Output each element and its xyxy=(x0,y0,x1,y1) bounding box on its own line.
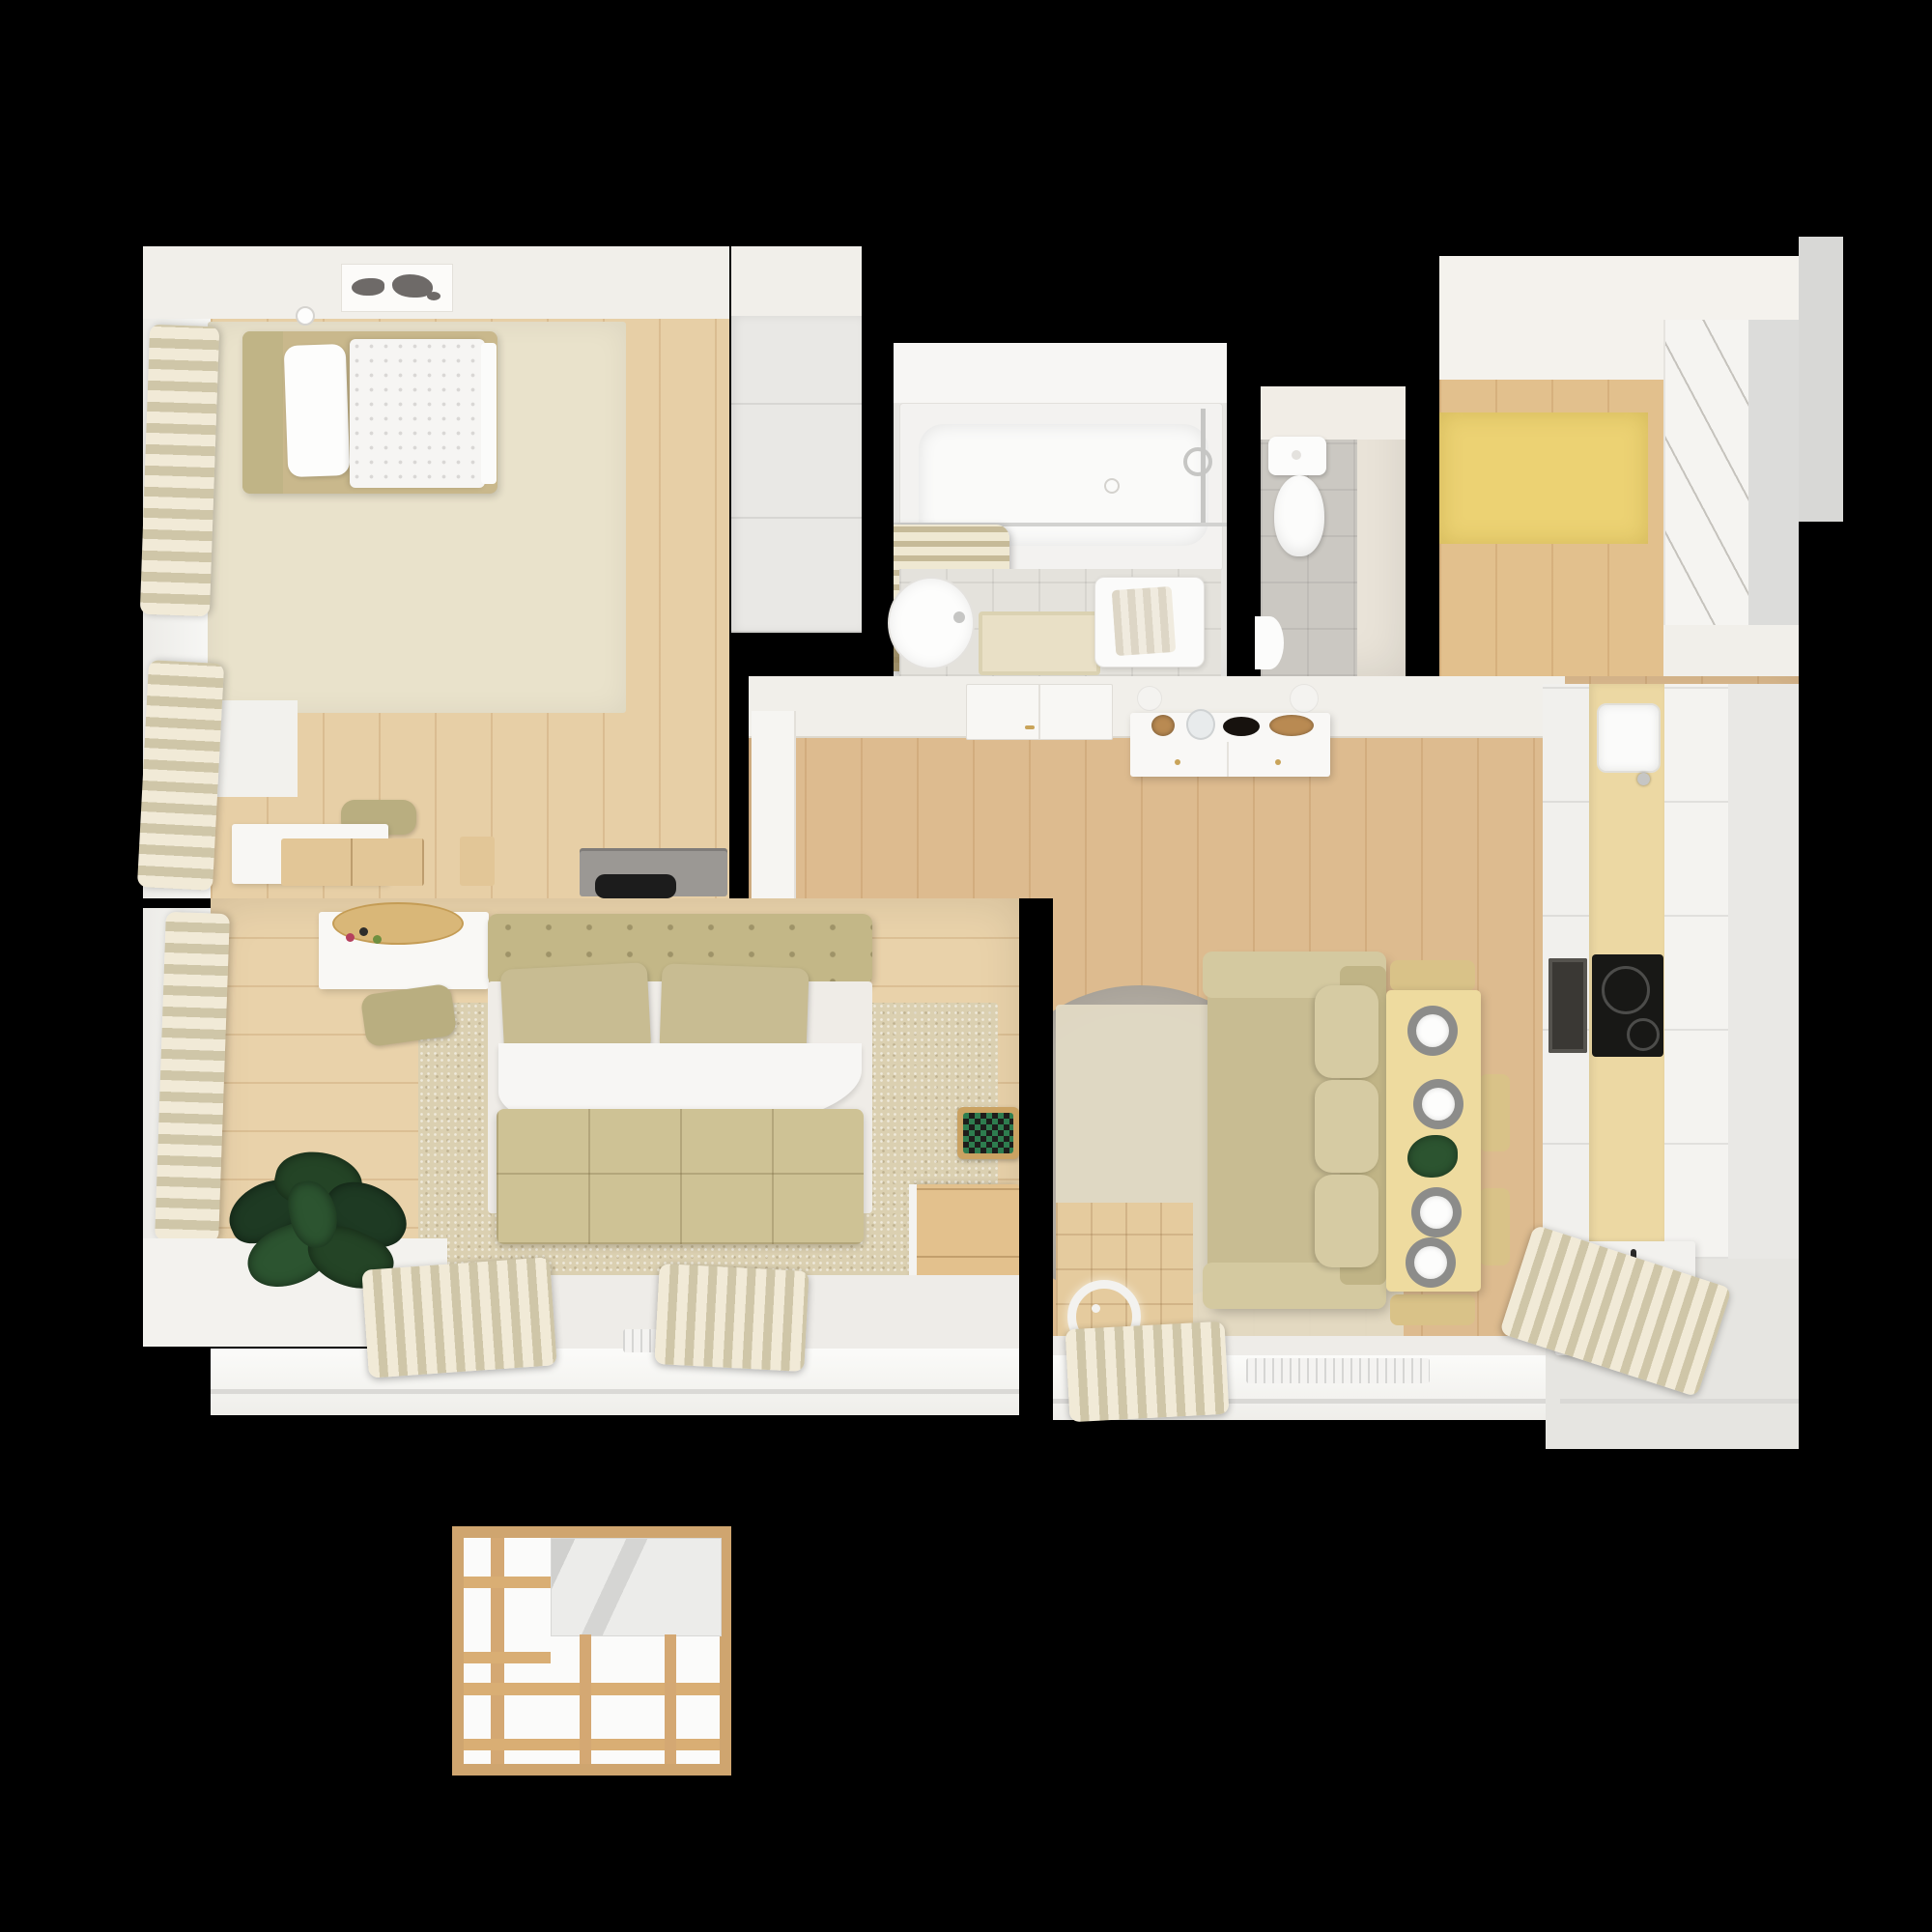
wardrobe xyxy=(731,316,862,633)
bath-mat xyxy=(979,611,1100,675)
door-handle xyxy=(1025,725,1035,729)
desk-drawers xyxy=(281,838,424,886)
curtain-rod xyxy=(1560,1399,1799,1404)
wall-plate-decor xyxy=(1290,684,1319,713)
cooktop xyxy=(1592,954,1663,1057)
console-knob xyxy=(1275,759,1281,765)
room-wc xyxy=(1261,386,1406,676)
floor-joist xyxy=(464,1683,720,1695)
side-cabinet xyxy=(460,837,495,886)
kitchen-tall-cabinets xyxy=(1664,684,1728,1259)
mattress-edge xyxy=(481,343,497,484)
dining-chair xyxy=(1390,960,1475,991)
table-plant xyxy=(1407,1135,1458,1178)
corner-sink xyxy=(1255,616,1284,669)
console-knob xyxy=(1175,759,1180,765)
door-seam xyxy=(1038,685,1040,739)
towel xyxy=(1112,586,1177,656)
pouf-top xyxy=(963,1113,1013,1153)
room-bedroom-1 xyxy=(143,246,729,898)
curtain xyxy=(361,1257,556,1378)
checker-pouf xyxy=(957,1107,1019,1159)
room-bedroom-2 xyxy=(143,898,1019,1415)
burner xyxy=(1627,1018,1660,1051)
bedroom-1-wardrobe-column xyxy=(731,246,862,633)
oven xyxy=(1548,958,1587,1053)
sink-faucet xyxy=(953,611,965,623)
floor-joist xyxy=(464,1739,720,1750)
bath-sink xyxy=(888,577,975,669)
shower-head xyxy=(1183,447,1212,476)
duvet xyxy=(350,339,485,488)
map-continent xyxy=(427,292,440,300)
wood-bowl xyxy=(1151,715,1175,736)
sliding-wardrobe xyxy=(1663,320,1750,625)
plate xyxy=(1416,1014,1449,1047)
floor-plan xyxy=(0,0,1932,1932)
wall-band xyxy=(1261,386,1406,440)
dining-chair xyxy=(1479,1074,1510,1151)
console-sideboard xyxy=(1130,713,1330,777)
toilet-bowl xyxy=(1274,475,1324,556)
map-continent xyxy=(352,278,384,296)
dining-table xyxy=(1386,990,1481,1292)
gray-wall-panel xyxy=(1748,320,1799,625)
frame-post xyxy=(491,1538,504,1764)
kitchen-faucet xyxy=(1637,773,1650,785)
sofa-cushion xyxy=(1315,1175,1378,1267)
wall-plate-decor xyxy=(1137,686,1162,711)
curtain xyxy=(137,660,224,891)
wall-lamp xyxy=(296,306,315,326)
room-balcony xyxy=(452,1526,731,1776)
dining-chair xyxy=(1390,1294,1475,1325)
curtain-rod xyxy=(211,1389,1019,1394)
exterior-gray-slab xyxy=(1799,237,1843,522)
pillow xyxy=(284,344,351,477)
plate xyxy=(1422,1088,1455,1121)
black-bowl xyxy=(1223,717,1260,736)
wood-tray xyxy=(1269,715,1314,736)
plate xyxy=(1420,1196,1453,1229)
world-map-poster xyxy=(341,264,453,312)
curtain xyxy=(140,325,219,616)
bed-quilt xyxy=(497,1109,864,1244)
wall-band xyxy=(894,343,1227,403)
kitchen-sink xyxy=(1597,703,1661,773)
office-chair xyxy=(595,874,676,898)
dining-chair xyxy=(1479,1188,1510,1265)
console-seam xyxy=(1227,742,1229,777)
toilet-button xyxy=(1292,450,1301,460)
room-entry-hall xyxy=(1439,256,1799,676)
single-bed-headboard xyxy=(242,331,283,494)
concrete-parapet xyxy=(551,1538,722,1636)
cosmetic-bottle xyxy=(359,927,368,936)
floor-joist-vertical xyxy=(665,1634,676,1764)
curtain xyxy=(654,1264,809,1372)
sofa-cushion xyxy=(1315,985,1378,1078)
bathtub-drain xyxy=(1104,478,1120,494)
lamp-center xyxy=(1092,1304,1100,1313)
niche-pillar xyxy=(752,711,796,918)
doormat xyxy=(1439,412,1648,544)
kitchen-wall-strip xyxy=(1728,684,1799,1259)
burner xyxy=(1602,966,1650,1014)
wall-lower xyxy=(1663,625,1799,676)
sofa-cushion xyxy=(1315,1080,1378,1173)
frame-rail xyxy=(464,1577,551,1588)
plate xyxy=(1414,1246,1447,1279)
window xyxy=(211,1349,1019,1415)
frame-rail xyxy=(464,1652,551,1663)
floor-joist-vertical xyxy=(580,1634,591,1764)
cosmetic-bottle xyxy=(373,935,382,944)
radiator xyxy=(1246,1358,1430,1383)
room-bathroom xyxy=(894,343,1227,676)
curtain xyxy=(1065,1321,1230,1423)
entry-door xyxy=(966,684,1113,740)
glass-vase xyxy=(1186,709,1215,740)
cosmetic-bottle xyxy=(346,933,355,942)
